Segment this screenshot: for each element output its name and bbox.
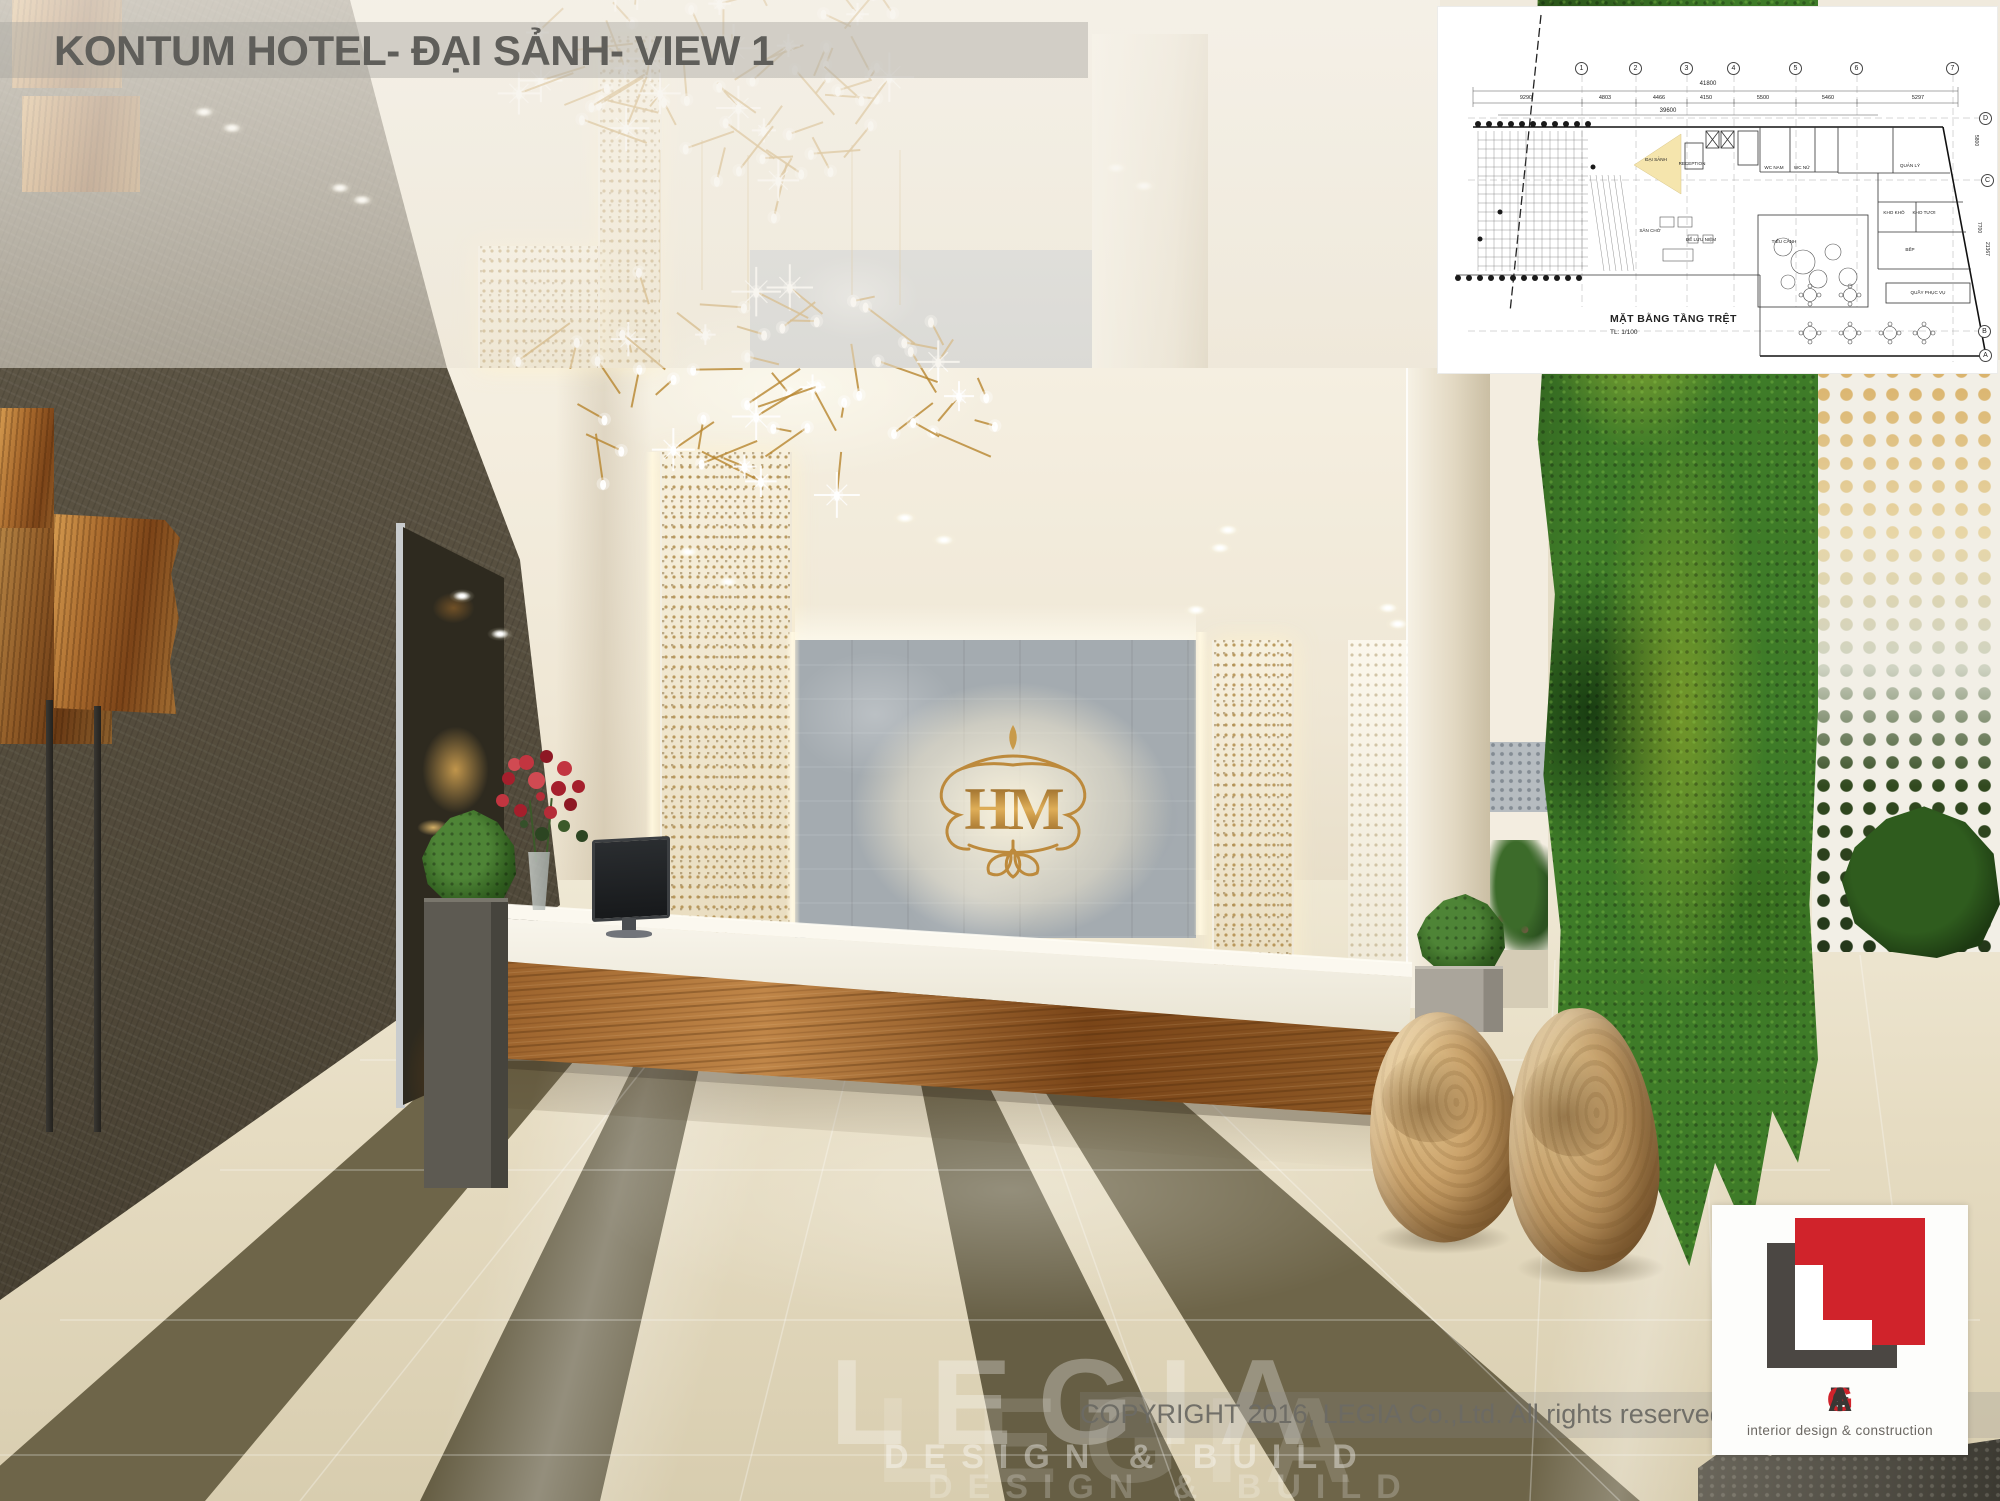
terrace-grid [1478,131,1634,271]
room-label: QUẦY PHỤC VỤ [1911,290,1946,295]
grid-bubble-letter: B [1978,325,1991,338]
dimension: 5297 [1912,95,1924,101]
side-dimension: 7700 [1976,222,1982,233]
room-label: ĐẠI SẢNH [1645,157,1667,162]
total-dimension: 39600 [1660,108,1677,114]
grid-bubble-letter: D [1979,112,1992,125]
dimension: 4150 [1700,95,1712,101]
grid-bubble: 5 [1789,62,1802,75]
grid-bubble: 2 [1629,62,1642,75]
room-label: WC NAM [1764,165,1783,170]
legia-logo-card: L E G I A interior design & construction [1712,1205,1968,1455]
site-boundary-line [1510,15,1541,312]
grid-bubble: 7 [1946,62,1959,75]
room-label: TIỂU CẢNH [1772,239,1797,244]
side-dimension: 5800 [1973,135,1979,146]
room-label: QUẢN LÝ [1900,163,1920,168]
page-title: KONTUM HOTEL- ĐẠI SẢNH- VIEW 1 [54,27,774,75]
dimension: 4466 [1653,95,1665,101]
dimension: 5500 [1757,95,1769,101]
grid-bubble-letter: C [1981,174,1994,187]
copyright-text: COPYRIGHT 2016, LEGIA Co.,Ltd. All right… [1080,1399,1720,1430]
room-label: KHO KHÔ [1883,210,1904,215]
plan-furniture [1660,217,1857,289]
logo-letter-l-horizontal [1795,1320,1872,1350]
plan-caption: MẶT BẰNG TẦNG TRỆT [1610,313,1737,325]
room-label: KHO TƯƠI [1912,210,1935,215]
room-label: RECEPTION [1679,161,1706,166]
grid-bubble: 6 [1850,62,1863,75]
grid-bubble-letter: A [1979,349,1992,362]
watermark-tagline: DESIGN & BUILD [884,1438,1372,1477]
room-label: SÂN CHỜ [1639,228,1660,233]
presentation-board: HM [0,0,2000,1501]
dimension-lines [1473,87,1958,115]
room-label: ĐỂ LƯU NIỆM [1686,237,1716,242]
dimension: 4803 [1599,95,1611,101]
logo-letter: A [1828,1381,1853,1420]
grid-bubble: 3 [1680,62,1693,75]
grid-bubble: 1 [1575,62,1588,75]
dimension: 9290 [1520,95,1532,101]
dimension: 5460 [1822,95,1834,101]
plan-scale: TL: 1/100 [1610,329,1637,336]
total-dimension: 41800 [1700,81,1717,87]
lobby-view-cone [1634,134,1681,194]
floor-plan-inset: 1 2 3 4 5 6 7 D C B A 41800 9290 4803 44… [1437,6,1998,374]
side-dimension: 21367 [1984,242,1990,256]
grid-bubble: 4 [1727,62,1740,75]
room-label: BẾP [1905,247,1914,252]
room-label: WC NỮ [1794,165,1810,170]
logo-tagline: interior design & construction [1712,1423,1968,1438]
